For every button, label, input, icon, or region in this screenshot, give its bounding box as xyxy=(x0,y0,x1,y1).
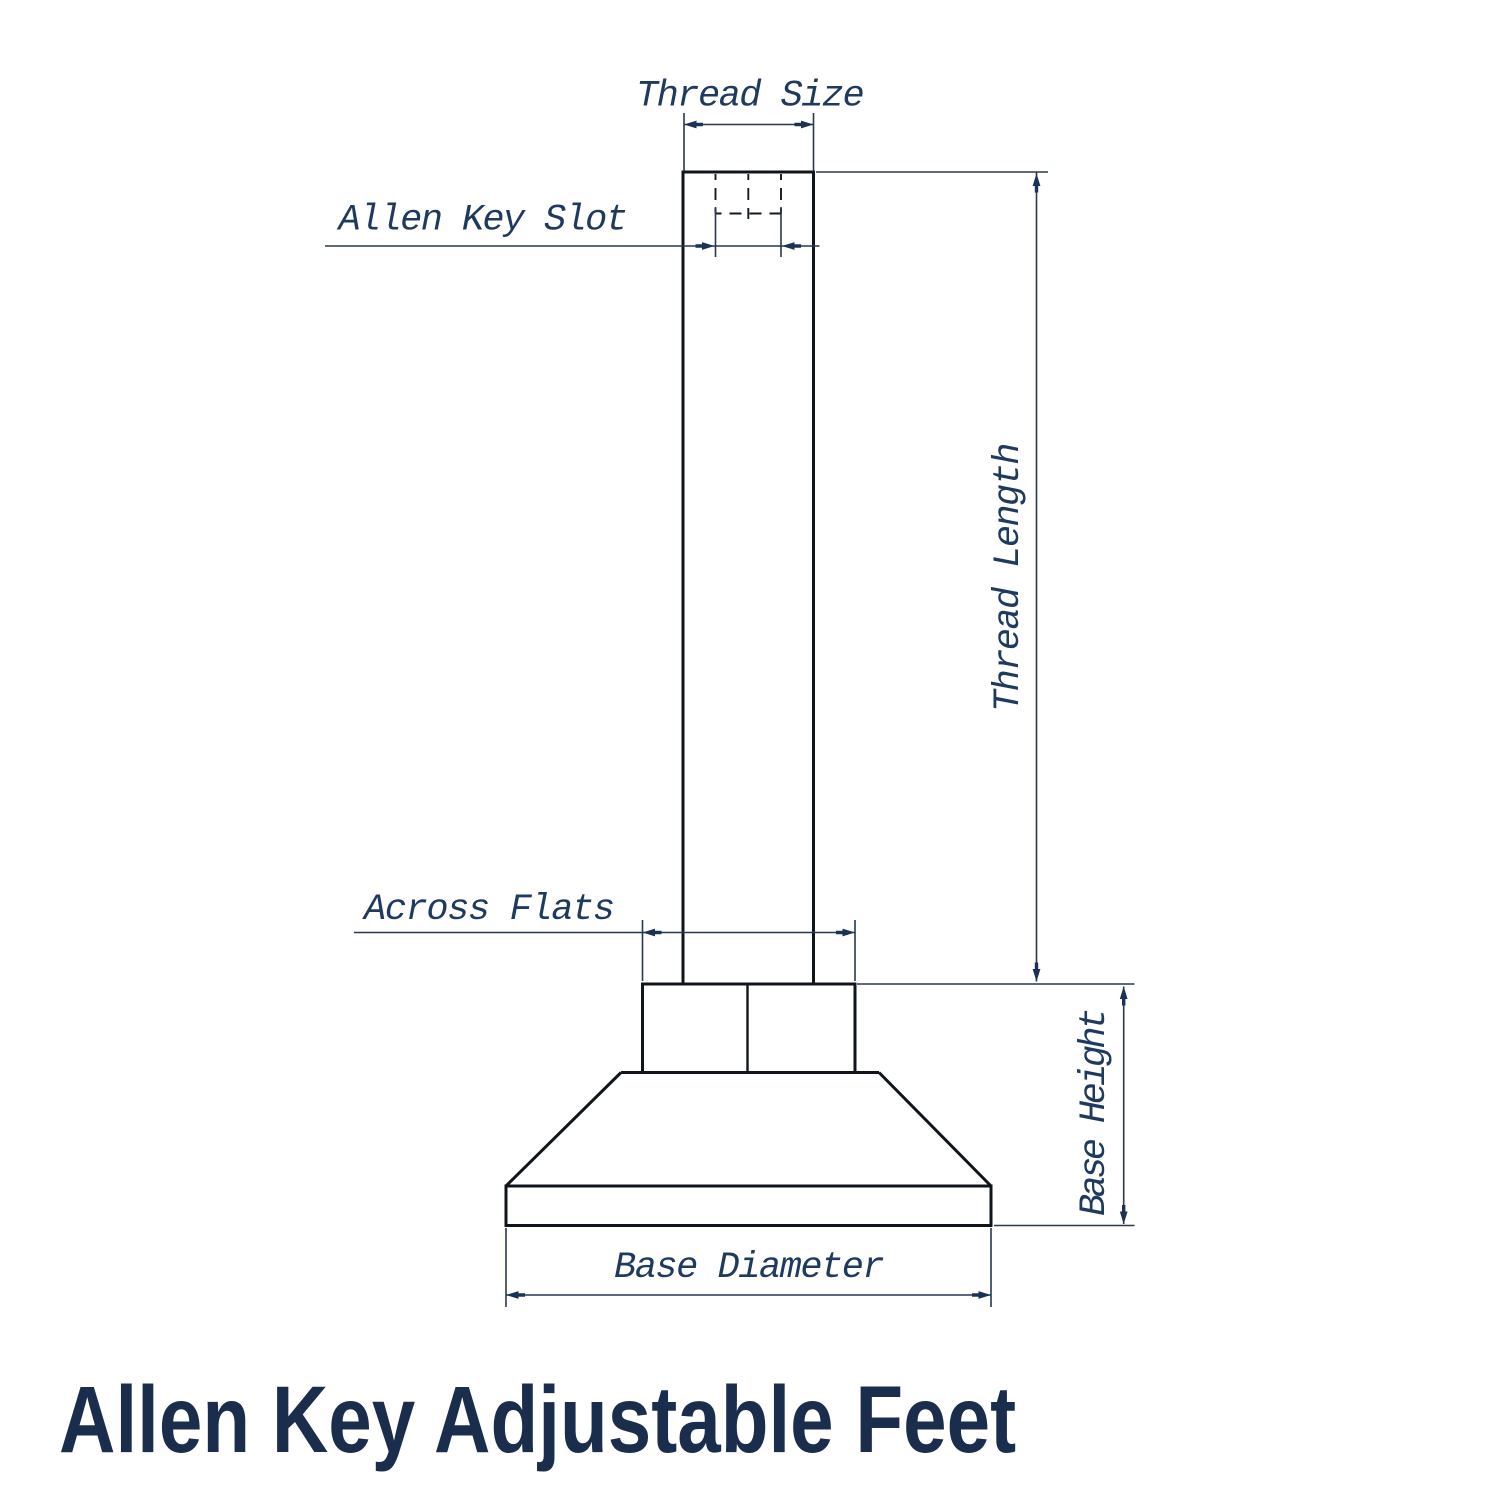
svg-text:Allen Key Adjustable Feet: Allen Key Adjustable Feet xyxy=(59,1367,1016,1473)
svg-text:Across Flats: Across Flats xyxy=(362,889,614,931)
svg-text:Base Height: Base Height xyxy=(1074,1010,1116,1216)
svg-text:Thread Size: Thread Size xyxy=(636,76,864,118)
svg-text:Thread Length: Thread Length xyxy=(988,444,1030,712)
svg-text:Allen Key Slot: Allen Key Slot xyxy=(337,200,627,242)
svg-text:Base Diameter: Base Diameter xyxy=(614,1247,883,1289)
